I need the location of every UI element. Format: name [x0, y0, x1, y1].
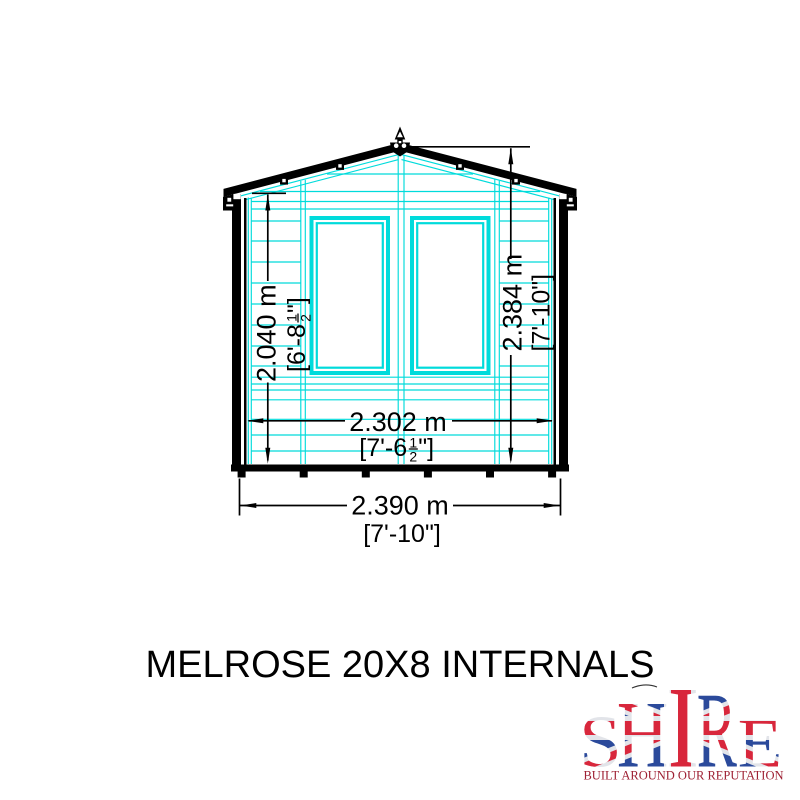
svg-text:[6'-8: [6'-8: [283, 324, 311, 372]
svg-text:2: 2: [409, 449, 417, 465]
svg-text:2: 2: [298, 314, 314, 322]
svg-text:MELROSE 20X8 INTERNALS: MELROSE 20X8 INTERNALS: [146, 644, 655, 686]
svg-text:2.302 m: 2.302 m: [349, 407, 447, 437]
svg-text:BUILT AROUND OUR REPUTATION: BUILT AROUND OUR REPUTATION: [583, 769, 783, 783]
svg-text:"]: "]: [283, 297, 311, 313]
svg-text:2.384 m: 2.384 m: [498, 254, 528, 352]
svg-text:2.040 m: 2.040 m: [252, 284, 282, 382]
svg-text:2.390 m: 2.390 m: [351, 491, 449, 521]
svg-text:"]: "]: [418, 434, 434, 462]
svg-text:[7'-6: [7'-6: [359, 434, 407, 462]
svg-text:[7'-10"]: [7'-10"]: [528, 274, 556, 352]
svg-text:[7'-10"]: [7'-10"]: [363, 520, 441, 548]
